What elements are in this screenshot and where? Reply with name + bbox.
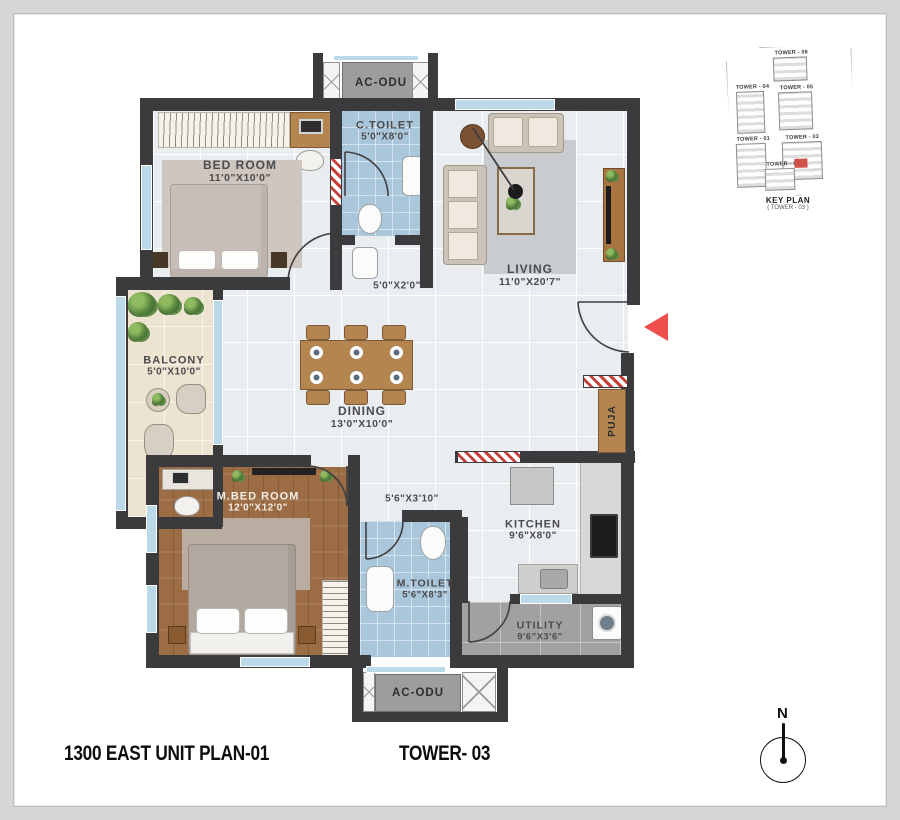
compass-needle-dot <box>780 757 787 764</box>
living-tv <box>606 186 611 244</box>
keyplan-tower-04-label: TOWER - 04 <box>736 84 770 91</box>
keyplan-tower-05 <box>778 91 813 130</box>
c-toilet-wc <box>358 204 382 234</box>
north-compass: N <box>755 705 815 790</box>
balcony-plant-2 <box>158 294 180 314</box>
living-sofa-cushion-2 <box>528 117 558 147</box>
kitchen-sink <box>540 569 568 589</box>
shaft-hatch-kitchen <box>457 451 521 463</box>
mbed-left-window-2 <box>146 585 157 633</box>
kitchen-fridge <box>510 467 554 505</box>
dining-chair-top-1 <box>306 325 330 340</box>
living-label: LIVING 11'0"X20'7" <box>499 262 561 288</box>
bedroom-side-table-right <box>271 252 287 268</box>
key-plan: TOWER - 06 TOWER - 04 TOWER - 05 TOWER -… <box>725 44 856 198</box>
wall-kitchen-left <box>455 517 468 603</box>
mbed-desk-laptop <box>172 472 189 484</box>
dining-plate-2 <box>350 346 363 359</box>
wall-balcony-bottom <box>116 517 222 529</box>
balcony-plant-4 <box>128 322 148 341</box>
wash-area-dim: 5'0"X2'0" <box>373 281 421 292</box>
ac-odu-bottom: AC-ODU <box>375 674 461 712</box>
wall-living-right <box>627 98 640 305</box>
balcony-sliding-door <box>213 300 223 445</box>
ac-top-louver-left <box>323 62 340 102</box>
bedroom-left-window <box>141 165 152 250</box>
bedroom-side-table-left <box>152 252 168 268</box>
mbed-tv <box>252 468 316 475</box>
dining-chair-top-2 <box>344 325 368 340</box>
m-toilet-label: M.TOILET 5'6"X8'3" <box>397 578 454 601</box>
ac-odu-bottom-label: AC-ODU <box>392 687 444 699</box>
bedroom-desk-laptop <box>299 119 323 134</box>
ac-bottom-sill <box>366 666 446 673</box>
ac-bottom-louver-left <box>363 672 375 712</box>
living-floor-lamp <box>508 184 523 199</box>
master-bedroom-label: M.BED ROOM 12'0"X12'0" <box>217 491 300 514</box>
shaft-hatch-bedroom-ctoilet <box>330 158 342 206</box>
mbed-bottom-window <box>240 657 310 667</box>
dining-chair-bottom-1 <box>306 390 330 405</box>
balcony-table-plant <box>152 393 164 405</box>
wash-area-basin <box>352 247 378 279</box>
mbed-wardrobe <box>322 580 350 660</box>
balcony-label: BALCONY 5'0"X10'0" <box>143 355 204 378</box>
balcony-chair-right <box>176 384 206 414</box>
keyplan-tower-01 <box>736 143 768 188</box>
wall-utility-bottom <box>455 655 634 668</box>
dining-chair-top-3 <box>382 325 406 340</box>
keyplan-highlight-unit <box>794 158 807 167</box>
wall-ac-bottom-base <box>352 712 508 722</box>
keyplan-tower-02 <box>765 168 796 191</box>
dining-chair-bottom-2 <box>344 390 368 405</box>
wall-ac-top-right <box>428 53 438 103</box>
dining-plate-6 <box>390 371 403 384</box>
c-toilet-label: C.TOILET 5'0"X8'0" <box>356 120 414 143</box>
ac-odu-top-label: AC-ODU <box>355 77 407 89</box>
dining-chair-bottom-3 <box>382 390 406 405</box>
utility-label: UTILITY 9'6"X3'6" <box>517 620 564 643</box>
compass-needle <box>782 723 786 761</box>
wall-mbed-top <box>146 455 311 467</box>
keyplan-tower-01-label: TOWER - 01 <box>737 136 771 143</box>
dining-plate-1 <box>310 346 323 359</box>
wall-ctoilet-right <box>420 98 433 288</box>
living-sofa-cushion-1 <box>493 117 523 147</box>
mbed-plant-1 <box>232 470 243 481</box>
balcony-plant-3 <box>184 297 202 314</box>
entry-arrow <box>644 313 668 341</box>
bedroom-wardrobe <box>158 112 290 148</box>
wall-bedroom-bottom <box>116 277 290 290</box>
living-console-plant-top <box>606 170 617 181</box>
keyplan-tower-06-label: TOWER - 06 <box>775 49 809 56</box>
puja-unit: PUJA <box>598 389 626 453</box>
dining-plate-5 <box>350 371 363 384</box>
mbed-chair <box>174 496 200 516</box>
keyplan-tower-04 <box>736 91 765 134</box>
mbed-bed-sheet <box>190 632 294 654</box>
keyplan-tower-03-label: TOWER - 03 <box>785 134 819 141</box>
bedroom-label: BED ROOM 11'0"X10'0" <box>203 158 277 184</box>
wall-ctoilet-bottom-a <box>330 235 355 245</box>
wall-top <box>140 98 640 111</box>
living-side-table <box>460 124 485 149</box>
dining-label: DINING 13'0"X10'0" <box>331 404 394 430</box>
bedroom-pillow-right <box>221 250 259 270</box>
north-label: N <box>777 705 788 722</box>
keyplan-tower-05-label: TOWER - 05 <box>780 84 814 91</box>
wall-mbed-left <box>146 455 159 668</box>
keyplan-tower-06 <box>773 56 808 81</box>
mbed-left-window-1 <box>146 505 157 553</box>
living-console-plant-bottom <box>606 248 617 259</box>
ac-top-louver-right <box>412 62 429 102</box>
wall-mbed-right <box>348 455 360 668</box>
mbed-side-table-right <box>298 626 316 644</box>
living-sofa3-cushion-2 <box>448 201 478 229</box>
mbed-side-table-left <box>168 626 186 644</box>
m-toilet-washbasin <box>366 566 394 612</box>
mbed-plant-2 <box>320 470 331 481</box>
wall-ctoilet-bottom-b <box>395 235 433 245</box>
kitchen-stove <box>590 514 618 558</box>
m-toilet-wc <box>420 526 446 560</box>
kitchen-label: KITCHEN 9'6"X8'0" <box>505 519 561 542</box>
mbed-pillow-right <box>244 608 288 634</box>
balcony-left-window <box>115 296 126 511</box>
plan-title: 1300 EAST UNIT PLAN-01 <box>64 742 269 766</box>
passage-dim: 5'6"X3'10" <box>385 494 439 505</box>
kitchen-utility-window <box>520 594 572 604</box>
wall-kitchen-utility-a <box>572 594 634 604</box>
mbed-pillow-left <box>196 608 240 634</box>
mbed-desk <box>162 469 218 490</box>
utility-washing-machine-drum <box>598 614 616 632</box>
dining-plate-3 <box>390 346 403 359</box>
dining-plate-4 <box>310 371 323 384</box>
tower-title: TOWER- 03 <box>399 742 490 766</box>
wall-ac-top-left <box>313 53 323 103</box>
bedroom-pillow-left <box>178 250 216 270</box>
ac-bottom-louver-right <box>462 672 496 712</box>
ac-top-sill <box>333 55 419 61</box>
shaft-hatch-puja <box>583 375 628 388</box>
living-sofa3-cushion-3 <box>448 232 478 260</box>
living-sofa3-cushion-1 <box>448 170 478 198</box>
puja-label: PUJA <box>606 405 618 437</box>
keyplan-caption: KEY PLAN ( TOWER - 03 ) <box>766 196 810 211</box>
living-top-window <box>455 99 555 110</box>
balcony-plant-1 <box>128 292 156 316</box>
